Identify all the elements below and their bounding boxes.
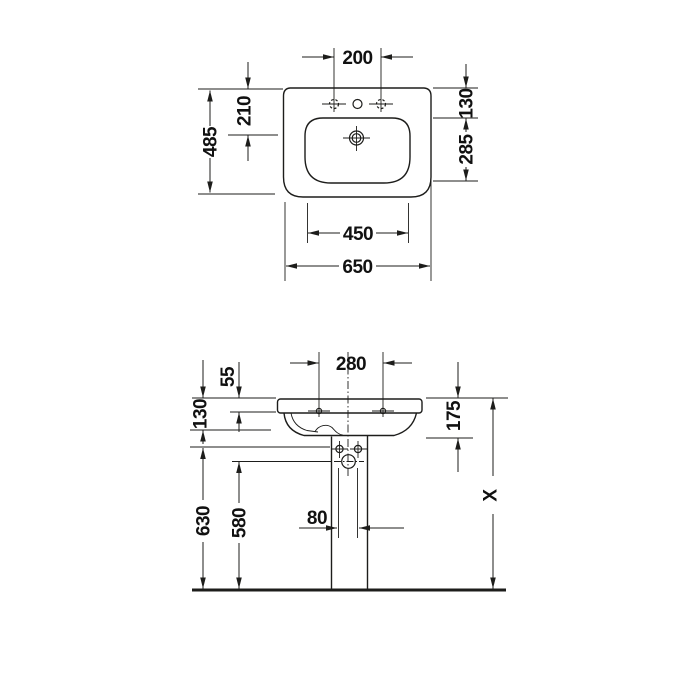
plan-drain-hole bbox=[343, 126, 370, 151]
dim-rim-to-outlet-line: 130 bbox=[191, 360, 212, 444]
dim-pipe-clearance-label: 80 bbox=[307, 508, 327, 529]
dim-fixing-distance: 280 bbox=[290, 354, 412, 375]
elev-trap-outline bbox=[315, 425, 343, 435]
elev-drain-outlet bbox=[334, 455, 364, 469]
dim-rear-to-drain-label: 210 bbox=[235, 96, 256, 126]
dim-bowl-width-label: 450 bbox=[343, 224, 373, 245]
plan-view: 200 485 210 130 285 450 bbox=[198, 48, 478, 281]
dim-rear-edge-offset-label: 130 bbox=[457, 88, 478, 118]
dim-total-width-label: 650 bbox=[342, 257, 372, 278]
dim-total-height-label: X bbox=[481, 489, 502, 502]
tap-hole-center bbox=[353, 100, 362, 109]
dim-bowl-width: 450 bbox=[308, 224, 408, 245]
dim-fixing-to-floor-label: 630 bbox=[194, 506, 215, 536]
dim-total-height: X bbox=[481, 399, 502, 589]
elev-rim-slab bbox=[278, 399, 423, 413]
dim-rim-to-fixing-label: 55 bbox=[218, 366, 239, 387]
dim-rim-to-outlet-line-label: 130 bbox=[191, 399, 212, 429]
dim-fixing-distance-label: 280 bbox=[336, 354, 366, 375]
dim-drain-to-front: 285 bbox=[457, 133, 478, 180]
elev-bowl-inner-line bbox=[291, 413, 318, 432]
dim-tap-distance: 200 bbox=[302, 48, 413, 69]
technical-drawing-canvas: 200 485 210 130 285 450 bbox=[0, 0, 700, 700]
dim-rim-to-trap: 175 bbox=[444, 362, 465, 472]
dim-fixing-to-floor: 630 bbox=[194, 448, 215, 589]
dim-total-width: 650 bbox=[286, 257, 430, 278]
elev-bowl-outline bbox=[284, 413, 417, 436]
dim-rear-edge-offset: 130 bbox=[457, 64, 478, 132]
dim-pipe-clearance: 80 bbox=[299, 508, 404, 529]
elev-pedestal bbox=[332, 436, 368, 589]
dim-outlet-to-floor: 580 bbox=[230, 462, 251, 589]
dim-total-depth: 485 bbox=[201, 91, 222, 193]
plan-extension-lines bbox=[198, 48, 478, 281]
drawing-svg: 200 485 210 130 285 450 bbox=[0, 0, 700, 700]
dim-outlet-to-floor-label: 580 bbox=[230, 508, 251, 538]
plan-inner-bowl-outline bbox=[305, 118, 410, 183]
elevation-view: 280 55 130 630 580 175 bbox=[190, 352, 508, 590]
dim-rim-to-fixing: 55 bbox=[218, 362, 239, 432]
dim-tap-distance-label: 200 bbox=[342, 48, 372, 69]
dim-drain-to-front-label: 285 bbox=[457, 133, 478, 164]
dim-rim-to-trap-label: 175 bbox=[444, 400, 465, 431]
dim-total-depth-label: 485 bbox=[201, 126, 222, 157]
dim-rear-to-drain: 210 bbox=[235, 62, 256, 161]
